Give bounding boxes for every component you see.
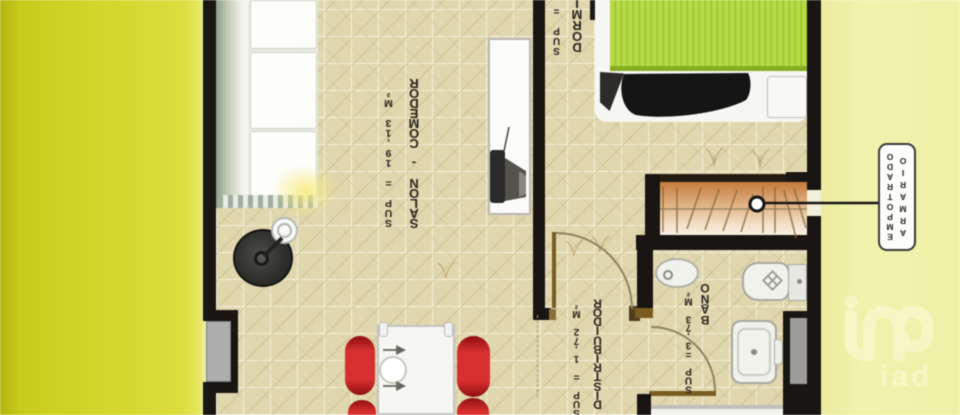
svg-text:iad: iad	[880, 360, 932, 393]
